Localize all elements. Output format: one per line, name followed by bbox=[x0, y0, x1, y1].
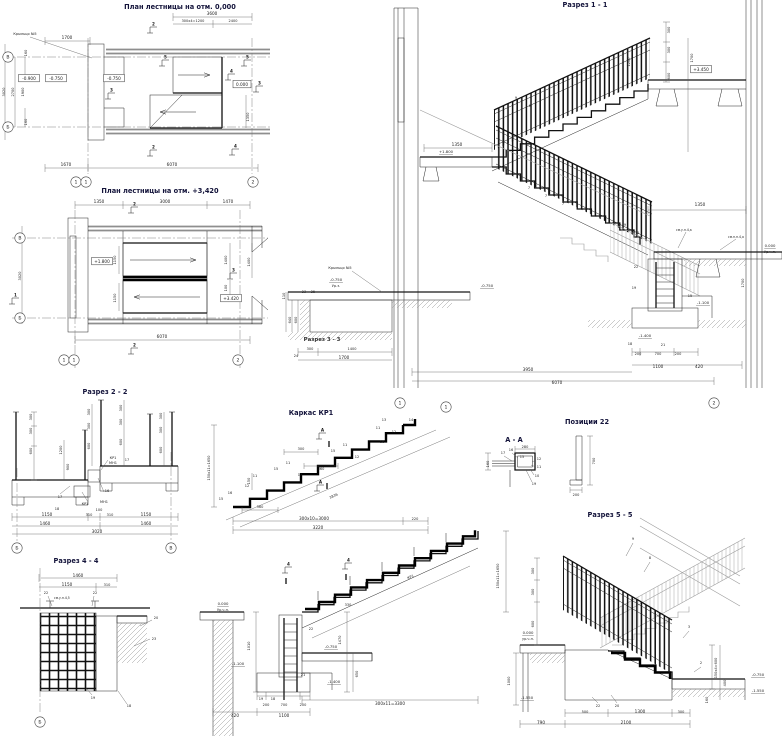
dim-label: 6070 bbox=[157, 334, 168, 339]
dim-label: 1150 bbox=[62, 582, 73, 587]
section-flag-label: 5 bbox=[246, 55, 249, 60]
dim-label: 1470 bbox=[338, 636, 342, 645]
title-frame-kr1: Каркас КР1 bbox=[289, 409, 334, 417]
dim-label: 6070 bbox=[552, 380, 563, 385]
dim-label: 400 bbox=[723, 680, 727, 687]
dim-label: 300 bbox=[667, 27, 671, 34]
dim-label: 1100 bbox=[279, 713, 290, 718]
dim-label: 280 bbox=[522, 445, 529, 449]
dim-label: Крыльцо №5 bbox=[328, 266, 351, 270]
dim-label: 300 bbox=[119, 405, 123, 412]
dim-label: 20 bbox=[615, 704, 619, 708]
dim-label: 22 bbox=[634, 265, 638, 269]
grid-axis-label: 1 bbox=[399, 401, 402, 407]
title-section-2-2: Разрез 2 - 2 bbox=[83, 388, 128, 396]
dim-label: 1400 bbox=[247, 258, 251, 267]
dim-label: 310 bbox=[86, 513, 93, 517]
dim-label: 8 bbox=[637, 231, 639, 235]
dim-label: 300 bbox=[667, 47, 671, 54]
title-positions-22: Позиции 22 bbox=[565, 418, 610, 426]
dim-label: 600 bbox=[119, 439, 123, 446]
dim-label: 700 bbox=[281, 703, 288, 707]
dim-label: 22 bbox=[44, 591, 48, 595]
dim-label: 1700 bbox=[741, 279, 745, 288]
dim-label: 330 bbox=[345, 603, 352, 607]
section-flag-label: 4 bbox=[347, 558, 350, 563]
dim-label: 3600 bbox=[207, 11, 218, 16]
dim-label: 16 bbox=[509, 448, 513, 452]
dim-label: 7 bbox=[528, 186, 530, 190]
dim-label: 18 bbox=[127, 704, 131, 708]
dim-label: МН1 bbox=[109, 461, 117, 465]
dim-label: 12 bbox=[245, 484, 249, 488]
title-plan-0: План лестницы на отм. 0,000 bbox=[124, 3, 236, 11]
dim-label: 19 bbox=[91, 696, 95, 700]
grid-axis-label: 2 bbox=[237, 358, 240, 364]
section-flag-label: 2 bbox=[133, 202, 136, 207]
dim-label: -0.750 bbox=[325, 644, 338, 649]
dim-label: 15 bbox=[688, 294, 692, 298]
dim-label: 24 bbox=[294, 354, 299, 358]
dim-label: 1100 bbox=[653, 364, 664, 369]
dim-label: 160 bbox=[705, 697, 709, 704]
dim-label: 2 bbox=[700, 661, 702, 665]
dim-label: 300х4=1200 bbox=[182, 19, 205, 23]
dim-label: 600 bbox=[29, 448, 33, 455]
dim-label: 300 bbox=[678, 710, 685, 714]
dim-label: 15 bbox=[219, 497, 223, 501]
elevation-value: +3.420 bbox=[223, 296, 239, 301]
dim-label: 0.000 bbox=[218, 601, 229, 606]
dim-label: -1.400 bbox=[328, 679, 341, 684]
dim-label: 11 bbox=[286, 461, 290, 465]
dim-label: 1470 bbox=[223, 199, 234, 204]
title-detail-a-a: А - А bbox=[505, 436, 523, 444]
dim-label: 16 bbox=[228, 491, 232, 495]
dim-label: 17 bbox=[501, 451, 505, 455]
dim-label: 160 bbox=[24, 50, 28, 57]
dim-label: 300 bbox=[307, 347, 314, 351]
dim-label: 160 bbox=[486, 461, 490, 468]
dim-label: 2400 bbox=[229, 19, 238, 23]
grid-axis-label: В bbox=[18, 236, 21, 242]
dim-label: 3 bbox=[688, 625, 690, 629]
dim-label: 700 bbox=[655, 352, 662, 356]
dim-label: 600 bbox=[87, 443, 91, 450]
dim-label: 1700 bbox=[62, 35, 73, 40]
dim-label: КР1 bbox=[82, 502, 89, 506]
dim-label: 1150 bbox=[113, 294, 117, 303]
title-section-1-1: Разрез 1 - 1 bbox=[563, 1, 608, 9]
dim-label: 310 bbox=[104, 583, 111, 587]
dim-label: 1300 bbox=[635, 709, 646, 714]
grid-axis-label: В bbox=[169, 546, 172, 552]
section-flag-label: 2 bbox=[133, 343, 136, 348]
dim-label: Ур.з. bbox=[332, 284, 340, 288]
dim-label: 19 bbox=[259, 697, 263, 701]
grid-axis-label: 1 bbox=[73, 358, 76, 364]
dim-label: 100 bbox=[224, 285, 228, 292]
dim-label: 600 bbox=[294, 317, 298, 324]
dim-label: 200 bbox=[573, 493, 580, 497]
elevation-value: +3.450 bbox=[693, 67, 709, 72]
title-section-4-4: Разрез 4 - 4 bbox=[54, 557, 99, 565]
dim-label: Крыльцо №5 bbox=[13, 32, 36, 36]
dim-label: +1.800 bbox=[439, 149, 454, 154]
dim-label: КР1 bbox=[110, 456, 117, 460]
dim-label: 11 bbox=[343, 443, 347, 447]
section-flag-label: 4 bbox=[234, 144, 237, 149]
dim-label: 17 bbox=[58, 495, 62, 499]
grid-axis-label: 1 bbox=[63, 358, 66, 364]
dim-label: 1350 bbox=[94, 199, 105, 204]
dim-label: 3020 bbox=[2, 88, 6, 97]
grid-axis-label: 1 bbox=[85, 180, 88, 186]
dim-label: 1670 bbox=[61, 162, 72, 167]
title-section-5-5: Разрез 5 - 5 bbox=[588, 511, 633, 519]
dim-label: 15 bbox=[520, 455, 524, 459]
dim-label: 10 bbox=[535, 474, 539, 478]
dim-label: 8 bbox=[649, 556, 651, 560]
grid-axis-label: Б bbox=[6, 125, 9, 131]
dim-label: см.п.п.4,а bbox=[728, 235, 744, 239]
dim-label: 1900 bbox=[21, 88, 25, 97]
dim-label: -1.100 bbox=[697, 300, 710, 305]
dim-label: 1010 bbox=[247, 642, 251, 651]
dim-label: 150х11=1650 bbox=[496, 563, 500, 588]
section-flag-label: 4 bbox=[230, 69, 233, 74]
elevation-value: 0.000 bbox=[236, 82, 248, 87]
drawing-canvas: План лестницы на отм. 0,000План лестницы… bbox=[0, 0, 782, 737]
section-flag-label: 4 bbox=[287, 562, 290, 567]
dim-label: 1350 bbox=[695, 202, 706, 207]
dim-label: 1200 bbox=[627, 58, 631, 67]
dim-label: 310 bbox=[107, 513, 114, 517]
dim-label: 1400 bbox=[348, 347, 357, 351]
dim-label: -0.750 bbox=[752, 672, 765, 677]
dim-label: 19 bbox=[632, 286, 636, 290]
dim-label: 300 bbox=[29, 428, 33, 435]
dim-label: 900 bbox=[66, 464, 70, 471]
dim-label: 0.000 bbox=[765, 243, 776, 248]
dim-label: 7 bbox=[562, 202, 564, 206]
dim-label: 220 bbox=[412, 517, 419, 521]
dim-label: 500 bbox=[582, 710, 589, 714]
dim-label: 11 bbox=[376, 426, 380, 430]
dim-label: 200 bbox=[300, 703, 307, 707]
dim-label: 6070 bbox=[167, 162, 178, 167]
elevation-value: -0.750 bbox=[107, 76, 121, 81]
dim-label: Ур.ч.п. bbox=[764, 250, 776, 254]
dim-label: 18 bbox=[271, 697, 275, 701]
dim-label: 0.000 bbox=[523, 630, 534, 635]
dim-label: 18 bbox=[55, 507, 59, 511]
title-section-3-3: Разрез 3 - 3 bbox=[304, 337, 341, 343]
dim-label: 21 bbox=[301, 673, 305, 677]
dim-label: 15 bbox=[274, 467, 278, 471]
dim-label: 16 bbox=[105, 489, 109, 493]
elevation-value: -0.750 bbox=[49, 76, 63, 81]
grid-axis-label: Б bbox=[15, 546, 18, 552]
drawing-sheet: План лестницы на отм. 0,000План лестницы… bbox=[0, 0, 782, 737]
dim-label: 200 bbox=[263, 703, 270, 707]
dim-label: 1350 bbox=[246, 113, 250, 122]
dim-label: 20 bbox=[154, 616, 158, 620]
dim-label: 8 bbox=[529, 104, 531, 108]
dim-label: см.у.п.4,5 bbox=[54, 596, 70, 600]
dim-label: 1200 bbox=[59, 446, 63, 455]
dim-label: 3000 bbox=[160, 199, 171, 204]
dim-label: 1700 bbox=[339, 355, 350, 360]
dim-label: -0.750 bbox=[330, 277, 343, 282]
dim-label: 600 bbox=[531, 621, 535, 628]
section-flag-label: 3 bbox=[232, 268, 235, 273]
grid-axis-label: 1 bbox=[75, 180, 78, 186]
dim-label: 420 bbox=[695, 364, 703, 369]
dim-label: 300 bbox=[119, 419, 123, 426]
dim-label: -0.750 bbox=[481, 283, 494, 288]
section-flag-label: 1 bbox=[14, 293, 17, 298]
dim-label: -1.550 bbox=[752, 688, 765, 693]
dim-label: 2700 bbox=[11, 88, 15, 97]
dim-label: 23 bbox=[302, 290, 306, 294]
dim-label: 3020 bbox=[18, 272, 22, 281]
dim-label: -1.400 bbox=[639, 333, 652, 338]
dim-label: 16 bbox=[380, 440, 384, 444]
dim-label: 300 bbox=[159, 413, 163, 420]
grid-axis-label: В bbox=[6, 55, 9, 61]
grid-axis-label: 1 bbox=[445, 405, 448, 411]
dim-label: 300 bbox=[531, 568, 535, 575]
dim-label: 300 bbox=[87, 423, 91, 430]
section-flag-label: 3 bbox=[258, 81, 261, 86]
dim-label: -1.100 bbox=[232, 661, 245, 666]
dim-label: 640 bbox=[288, 317, 292, 324]
dim-label: 21 bbox=[661, 343, 665, 347]
dim-label: 150х11=1650 bbox=[207, 455, 211, 480]
dim-label: 300 bbox=[531, 589, 535, 596]
dim-label: 1400 bbox=[224, 256, 228, 265]
dim-label: 600 bbox=[159, 447, 163, 454]
dim-label: 1460 bbox=[40, 521, 51, 526]
dim-label: Ур.ч.п. bbox=[217, 608, 229, 612]
dim-label: 12 bbox=[392, 430, 396, 434]
dim-label: 1150 bbox=[42, 512, 53, 517]
dim-label: 300х11=3300 bbox=[375, 701, 405, 706]
title-plan-3420: План лестницы на отм. +3,420 bbox=[101, 187, 219, 195]
dim-label: 420 bbox=[231, 713, 239, 718]
dim-label: 360 bbox=[257, 505, 264, 509]
dim-label: 300 bbox=[87, 409, 91, 416]
dim-label: 12 bbox=[298, 473, 302, 477]
dim-label: 1150 bbox=[113, 256, 117, 265]
grid-axis-label: Б bbox=[18, 316, 21, 322]
dim-label: 650 bbox=[355, 671, 359, 678]
dim-label: 22 bbox=[309, 627, 313, 631]
dim-label: 300х10=3000 bbox=[299, 516, 329, 521]
dim-label: 1000 bbox=[507, 677, 511, 686]
dim-label: 11 bbox=[253, 474, 257, 478]
dim-label: 1350 bbox=[452, 142, 463, 147]
dim-label: 1460 bbox=[141, 521, 152, 526]
dim-label: 15 bbox=[331, 449, 335, 453]
section-flag-label: 2 bbox=[152, 145, 155, 150]
dim-label: 19 bbox=[532, 482, 536, 486]
grid-axis-label: 2 bbox=[713, 401, 716, 407]
dim-label: 23 bbox=[152, 637, 156, 641]
dim-label: 160 bbox=[24, 119, 28, 126]
dim-label: ур.ч.п. bbox=[522, 637, 534, 641]
dim-label: 3220 bbox=[313, 525, 324, 530]
dim-label: 7 bbox=[545, 194, 547, 198]
section-flag-label: 2 bbox=[152, 22, 155, 27]
dim-label: 17 bbox=[125, 458, 129, 462]
dim-label: 14 bbox=[409, 418, 414, 422]
dim-label: 12 bbox=[355, 455, 359, 459]
dim-label: 300 bbox=[159, 427, 163, 434]
grid-axis-label: Б bbox=[38, 720, 41, 726]
dim-label: 1460 bbox=[73, 573, 84, 578]
dim-label: 9 bbox=[624, 223, 626, 227]
section-flag-label: 3 bbox=[110, 88, 113, 93]
dim-label: 3020 bbox=[92, 529, 103, 534]
dim-label: 25 bbox=[311, 290, 315, 294]
dim-label: 300 bbox=[29, 414, 33, 421]
dim-label: 100 bbox=[96, 508, 103, 512]
dim-label: 200 bbox=[635, 352, 642, 356]
dim-label: 200 bbox=[675, 352, 682, 356]
dim-label: 9 bbox=[632, 537, 634, 541]
dim-label: 600 bbox=[667, 73, 671, 80]
dim-label: 2100 bbox=[621, 720, 632, 725]
dim-label: 700 bbox=[592, 458, 596, 465]
dim-label: МН1 bbox=[100, 500, 108, 504]
dim-label: 790 bbox=[537, 720, 545, 725]
dim-label: 150х4=600 bbox=[714, 658, 718, 679]
dim-label: 13 bbox=[382, 418, 386, 422]
dim-label: 9 bbox=[515, 96, 517, 100]
dim-label: 12 bbox=[537, 457, 541, 461]
dim-label: -1.550 bbox=[521, 695, 534, 700]
elevation-value: +1.800 bbox=[94, 259, 110, 264]
dim-label: 1700 bbox=[690, 54, 694, 63]
dim-label: 11 bbox=[537, 465, 541, 469]
dim-label: 22 bbox=[596, 704, 600, 708]
dim-label: 360 bbox=[318, 467, 325, 471]
dim-label: см.у.п.4,а bbox=[676, 228, 692, 232]
dim-label: 18 bbox=[628, 342, 632, 346]
dim-label: 22 bbox=[93, 591, 97, 595]
dim-label: 110 bbox=[282, 293, 286, 300]
grid-axis-label: 2 bbox=[252, 180, 255, 186]
section-flag-label: 5 bbox=[164, 55, 167, 60]
dim-label: 3950 bbox=[523, 367, 534, 372]
dim-label: 300 bbox=[298, 447, 305, 451]
dim-label: 1150 bbox=[141, 512, 152, 517]
elevation-value: -0.900 bbox=[22, 76, 36, 81]
